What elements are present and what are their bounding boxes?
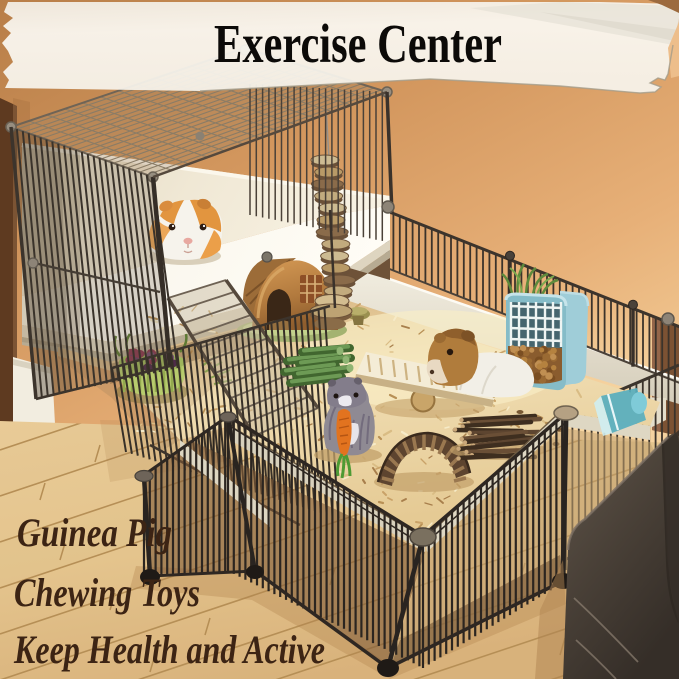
svg-text:Exercise Center: Exercise Center <box>214 13 502 74</box>
svg-text:Chewing Toys: Chewing Toys <box>14 570 200 615</box>
svg-text:Guinea Pig: Guinea Pig <box>17 510 172 555</box>
svg-text:Keep Health and Active: Keep Health and Active <box>13 627 325 672</box>
